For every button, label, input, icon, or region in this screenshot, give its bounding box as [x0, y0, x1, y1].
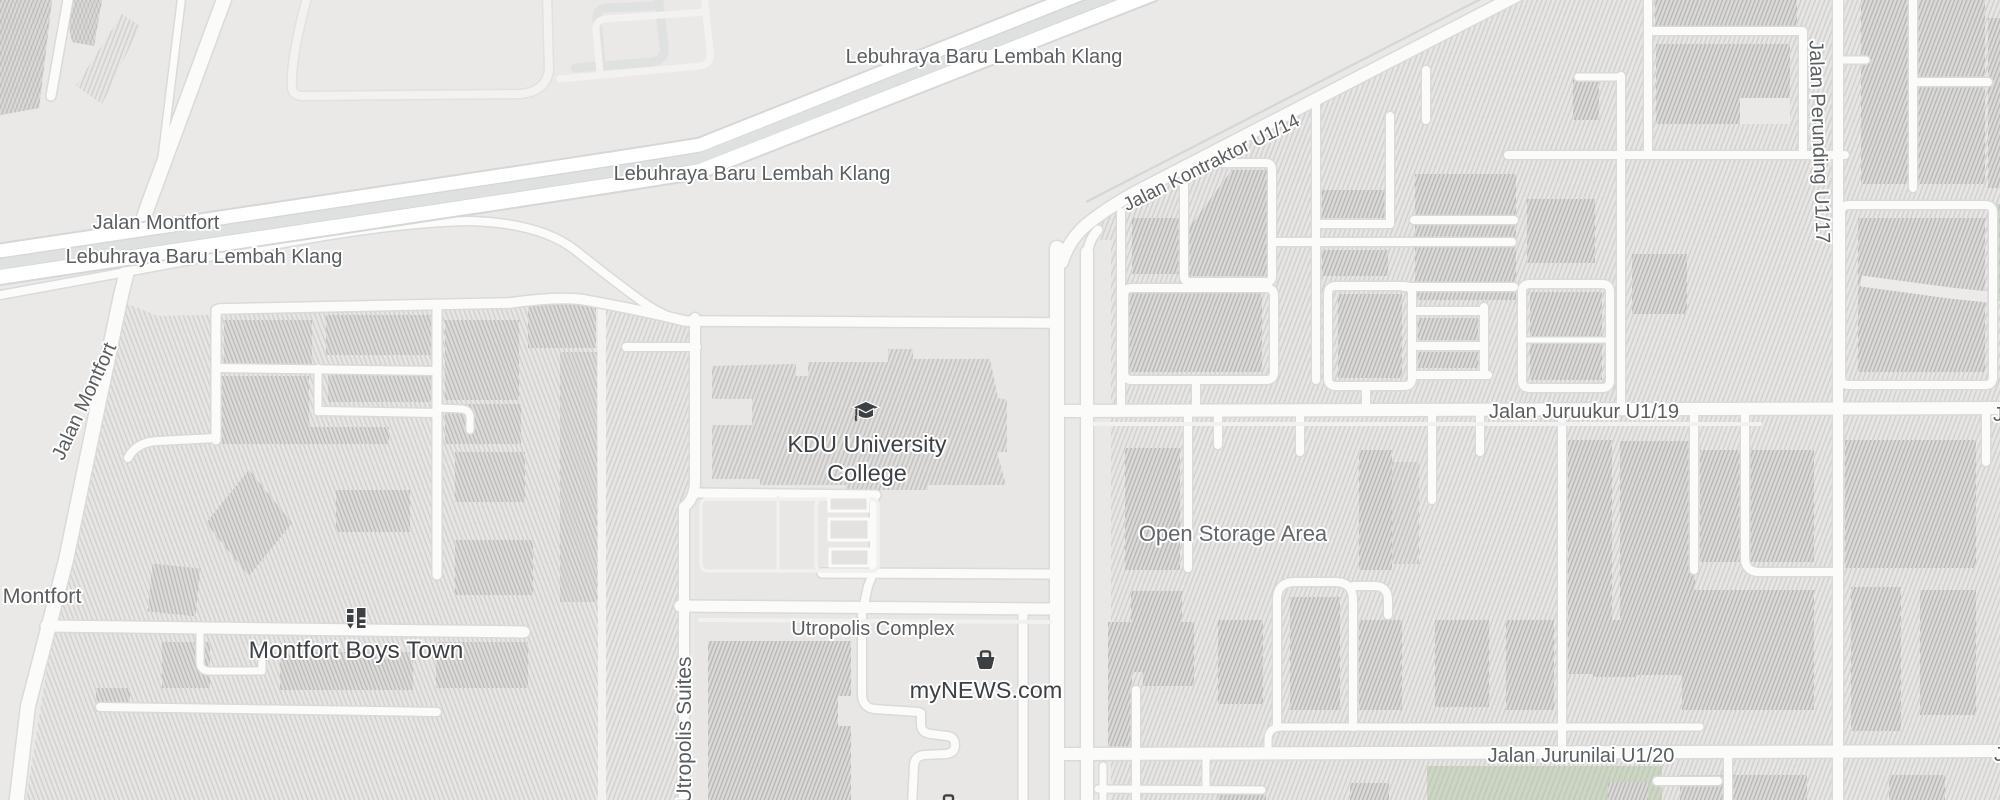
svg-text:College: College [827, 460, 907, 486]
svg-text:Jalan Montfort: Jalan Montfort [93, 212, 220, 234]
svg-text:J: J [1993, 404, 2000, 426]
svg-text:Utropolis Complex: Utropolis Complex [791, 618, 954, 640]
svg-text:myNEWS.com: myNEWS.com [910, 677, 1063, 703]
svg-text:J: J [1994, 744, 2000, 766]
svg-text:Montfort Boys Town: Montfort Boys Town [249, 637, 464, 664]
svg-text:Utropolis Suites: Utropolis Suites [673, 656, 696, 800]
svg-text:Jalan Jurunilai U1/20: Jalan Jurunilai U1/20 [1488, 745, 1675, 767]
svg-text:Lebuhraya Baru Lembah Klang: Lebuhraya Baru Lembah Klang [66, 246, 343, 268]
svg-text:KDU University: KDU University [787, 431, 947, 457]
svg-text:Lebuhraya Baru Lembah Klang: Lebuhraya Baru Lembah Klang [846, 46, 1123, 68]
svg-text:Open Storage Area: Open Storage Area [1139, 521, 1328, 546]
svg-text:Jalan Juruukur U1/19: Jalan Juruukur U1/19 [1489, 401, 1679, 423]
svg-text:Montfort: Montfort [3, 584, 82, 608]
svg-text:Lebuhraya Baru Lembah Klang: Lebuhraya Baru Lembah Klang [614, 163, 891, 185]
